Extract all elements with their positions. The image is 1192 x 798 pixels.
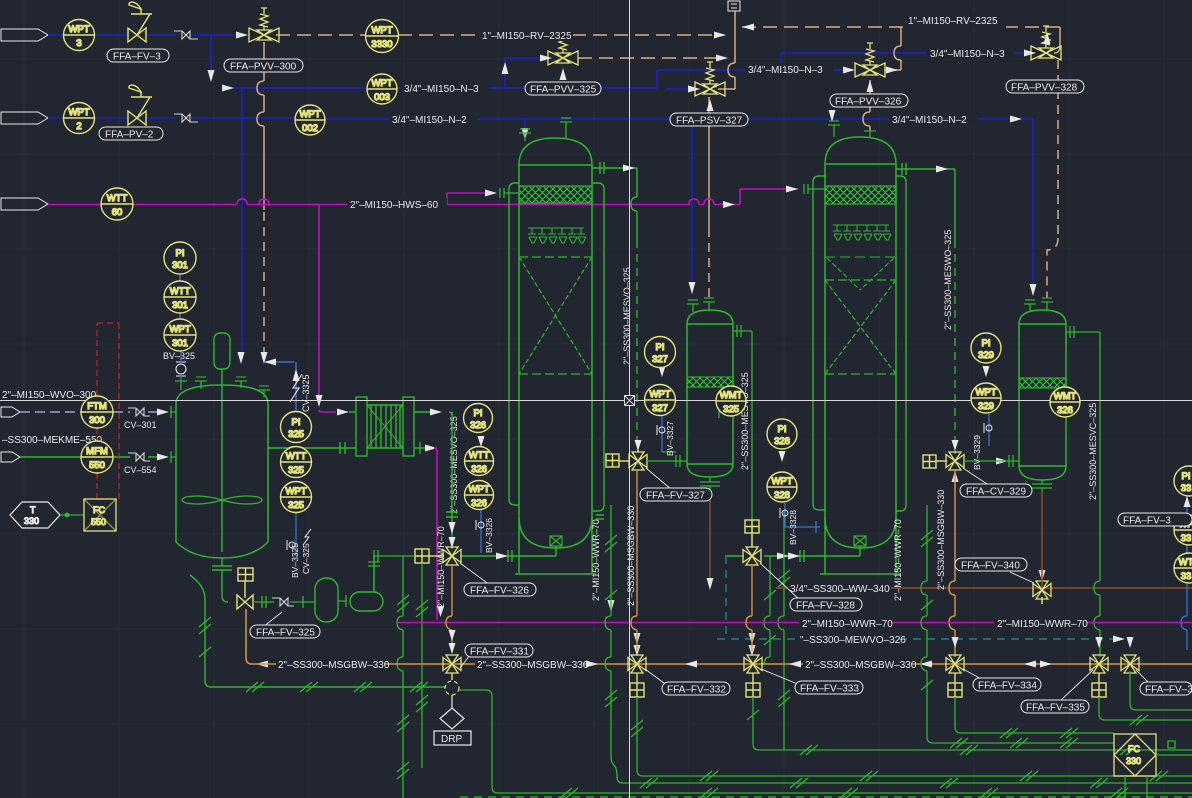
svg-text:BV–3327: BV–3327 bbox=[665, 421, 675, 456]
svg-text:3/4"–SS300–WW–340: 3/4"–SS300–WW–340 bbox=[790, 584, 890, 595]
svg-text:FFA–FV–335: FFA–FV–335 bbox=[1026, 703, 1085, 714]
svg-text:33: 33 bbox=[1181, 533, 1192, 544]
svg-text:330: 330 bbox=[1126, 756, 1141, 766]
svg-text:2"–MI150–HWS–60: 2"–MI150–HWS–60 bbox=[350, 200, 438, 211]
svg-text:326: 326 bbox=[470, 420, 486, 431]
svg-text:2"–MI150–WWR–70: 2"–MI150–WWR–70 bbox=[802, 619, 893, 630]
svg-text:FFA–PVV–325: FFA–PVV–325 bbox=[530, 85, 597, 96]
svg-text:FFA–FV–340: FFA–FV–340 bbox=[961, 561, 1020, 572]
svg-text:WPT: WPT bbox=[371, 25, 392, 36]
svg-text:BV–3326: BV–3326 bbox=[484, 518, 494, 553]
svg-text:BV–3325: BV–3325 bbox=[290, 543, 300, 578]
svg-text:3/4"–MI150–N–3: 3/4"–MI150–N–3 bbox=[404, 84, 479, 95]
svg-text:2"–MI150–WWR–70: 2"–MI150–WWR–70 bbox=[591, 519, 601, 601]
svg-text:FFA–FV–334: FFA–FV–334 bbox=[978, 681, 1037, 692]
svg-text:WPT: WPT bbox=[371, 78, 392, 89]
svg-text:2"–SS300–MSGBW–330: 2"–SS300–MSGBW–330 bbox=[936, 490, 946, 590]
svg-text:2"–MI150–WVO–300: 2"–MI150–WVO–300 bbox=[2, 390, 97, 401]
svg-text:2"–SS300–MSGBW–330: 2"–SS300–MSGBW–330 bbox=[278, 660, 390, 671]
svg-text:002: 002 bbox=[302, 123, 318, 134]
svg-text:550: 550 bbox=[89, 460, 105, 471]
svg-text:330: 330 bbox=[24, 516, 39, 526]
svg-text:WTT: WTT bbox=[469, 450, 490, 461]
svg-text:3/4"–MI150–N–3: 3/4"–MI150–N–3 bbox=[748, 65, 823, 76]
svg-text:FFA–FV–328: FFA–FV–328 bbox=[796, 601, 855, 612]
svg-text:FFA–FV–327: FFA–FV–327 bbox=[646, 491, 705, 502]
svg-text:WPT: WPT bbox=[468, 484, 489, 495]
svg-text:328: 328 bbox=[774, 490, 790, 501]
svg-text:325: 325 bbox=[288, 429, 304, 440]
svg-text:FFA–PSV–327: FFA–PSV–327 bbox=[676, 116, 743, 127]
svg-text:FFA–CV–329: FFA–CV–329 bbox=[966, 487, 1026, 498]
svg-text:33: 33 bbox=[1181, 571, 1192, 582]
svg-text:FFA–PV–2: FFA–PV–2 bbox=[105, 130, 154, 141]
svg-text:FFA–FV–3: FFA–FV–3 bbox=[113, 52, 161, 63]
svg-text:550: 550 bbox=[91, 517, 106, 527]
svg-text:WPT: WPT bbox=[299, 109, 320, 120]
svg-text:WPT: WPT bbox=[68, 107, 89, 118]
svg-text:327: 327 bbox=[652, 354, 668, 365]
svg-text:WPT: WPT bbox=[771, 476, 792, 487]
svg-text:PI: PI bbox=[1182, 471, 1191, 482]
svg-text:MFM: MFM bbox=[86, 446, 108, 457]
svg-text:1"–MI150–RV–2325: 1"–MI150–RV–2325 bbox=[482, 31, 572, 42]
svg-text:FFA–FV–325: FFA–FV–325 bbox=[256, 628, 315, 639]
svg-text:WTT: WTT bbox=[107, 193, 128, 204]
svg-text:"–SS300–MEWVO–326: "–SS300–MEWVO–326 bbox=[800, 635, 906, 646]
svg-text:WPT: WPT bbox=[975, 387, 996, 398]
svg-text:T: T bbox=[30, 505, 36, 515]
svg-text:FFA–PVV–326: FFA–PVV–326 bbox=[835, 97, 902, 108]
svg-text:BV–3328: BV–3328 bbox=[788, 510, 798, 545]
svg-text:2"–SS300–MSGBW–330: 2"–SS300–MSGBW–330 bbox=[477, 660, 589, 671]
svg-text:FTM: FTM bbox=[87, 401, 107, 412]
svg-text:300: 300 bbox=[89, 415, 105, 426]
svg-text:FC: FC bbox=[1128, 744, 1140, 754]
svg-text:CV–3325: CV–3325 bbox=[301, 374, 311, 412]
svg-text:1"–MI150–RV–2325: 1"–MI150–RV–2325 bbox=[908, 16, 998, 27]
svg-text:325: 325 bbox=[288, 500, 304, 511]
svg-text:3330: 3330 bbox=[371, 39, 392, 50]
svg-text:326: 326 bbox=[471, 498, 487, 509]
svg-text:FFA–FV–331: FFA–FV–331 bbox=[470, 647, 529, 658]
svg-text:60: 60 bbox=[112, 207, 123, 218]
svg-text:FFA–PVV–328: FFA–PVV–328 bbox=[1011, 83, 1078, 94]
svg-text:PI: PI bbox=[292, 417, 301, 428]
svg-text:2: 2 bbox=[76, 121, 81, 132]
svg-text:CV–301: CV–301 bbox=[124, 420, 157, 430]
svg-text:WPT: WPT bbox=[169, 324, 190, 335]
svg-text:003: 003 bbox=[374, 92, 390, 103]
svg-text:WPT: WPT bbox=[68, 24, 89, 35]
svg-text:BV–325: BV–325 bbox=[163, 351, 195, 361]
svg-text:2"–SS300–MESWO–325: 2"–SS300–MESWO–325 bbox=[943, 230, 953, 330]
svg-text:WT: WT bbox=[1179, 557, 1192, 568]
svg-text:3/4"–MI150–N–3: 3/4"–MI150–N–3 bbox=[930, 49, 1005, 60]
svg-text:301: 301 bbox=[172, 300, 188, 311]
svg-text:DRP: DRP bbox=[441, 734, 462, 745]
svg-text:2"–SS300–MSGBW–330: 2"–SS300–MSGBW–330 bbox=[805, 660, 917, 671]
svg-text:2"–SS300–MESVO–325: 2"–SS300–MESVO–325 bbox=[449, 416, 459, 514]
svg-text:WPT: WPT bbox=[649, 389, 670, 400]
svg-text:WMT: WMT bbox=[1054, 391, 1077, 402]
svg-text:326: 326 bbox=[1057, 405, 1073, 416]
svg-text:FFA–FV–332: FFA–FV–332 bbox=[667, 685, 726, 696]
svg-text:PI: PI bbox=[778, 424, 787, 435]
svg-text:326: 326 bbox=[471, 464, 487, 475]
svg-text:PI: PI bbox=[176, 248, 185, 259]
svg-text:FFA–FV–333: FFA–FV–333 bbox=[800, 684, 859, 695]
svg-text:2"–SS300–MSGBW–330: 2"–SS300–MSGBW–330 bbox=[626, 506, 636, 606]
svg-text:301: 301 bbox=[172, 338, 188, 349]
svg-text:WTT: WTT bbox=[286, 451, 307, 462]
svg-text:2"–MI150–WWR–70: 2"–MI150–WWR–70 bbox=[436, 526, 446, 608]
svg-text:325: 325 bbox=[723, 404, 739, 415]
svg-text:WTT: WTT bbox=[170, 286, 191, 297]
svg-text:CV–325: CV–325 bbox=[301, 543, 311, 574]
svg-text:329: 329 bbox=[978, 350, 994, 361]
svg-text:PI: PI bbox=[474, 408, 483, 419]
svg-text:WPT: WPT bbox=[285, 486, 306, 497]
svg-text:PI: PI bbox=[656, 342, 665, 353]
svg-text:2"–MI150–WWR–70: 2"–MI150–WWR–70 bbox=[997, 619, 1088, 630]
svg-text:2"–SS300–MESVO–325: 2"–SS300–MESVO–325 bbox=[740, 372, 750, 470]
svg-text:FFA–PVV–300: FFA–PVV–300 bbox=[230, 62, 297, 73]
svg-text:325: 325 bbox=[288, 465, 304, 476]
svg-text:FC: FC bbox=[93, 505, 105, 515]
svg-text:328: 328 bbox=[774, 436, 790, 447]
svg-text:BV–3329: BV–3329 bbox=[972, 435, 982, 470]
svg-text:327: 327 bbox=[652, 403, 668, 414]
svg-text:33: 33 bbox=[1181, 483, 1192, 494]
svg-text:3/4"–MI150–N–2: 3/4"–MI150–N–2 bbox=[892, 115, 967, 126]
svg-text:329: 329 bbox=[978, 401, 994, 412]
svg-text:WMT: WMT bbox=[720, 390, 743, 401]
svg-text:PI: PI bbox=[982, 338, 991, 349]
svg-text:FFA–FV–3: FFA–FV–3 bbox=[1123, 516, 1171, 527]
svg-text:2"–SS300–MESVC–325: 2"–SS300–MESVC–325 bbox=[1088, 403, 1098, 500]
svg-text:2"–SS300–MESVO–325: 2"–SS300–MESVO–325 bbox=[622, 267, 632, 365]
svg-text:301: 301 bbox=[172, 260, 188, 271]
svg-text:CV–554: CV–554 bbox=[124, 465, 157, 475]
svg-text:FFA–FV–326: FFA–FV–326 bbox=[470, 586, 529, 597]
svg-text:FFA–FV–3: FFA–FV–3 bbox=[1145, 685, 1192, 696]
svg-text:3: 3 bbox=[76, 38, 81, 49]
svg-text:3/4"–MI150–N–2: 3/4"–MI150–N–2 bbox=[392, 115, 467, 126]
